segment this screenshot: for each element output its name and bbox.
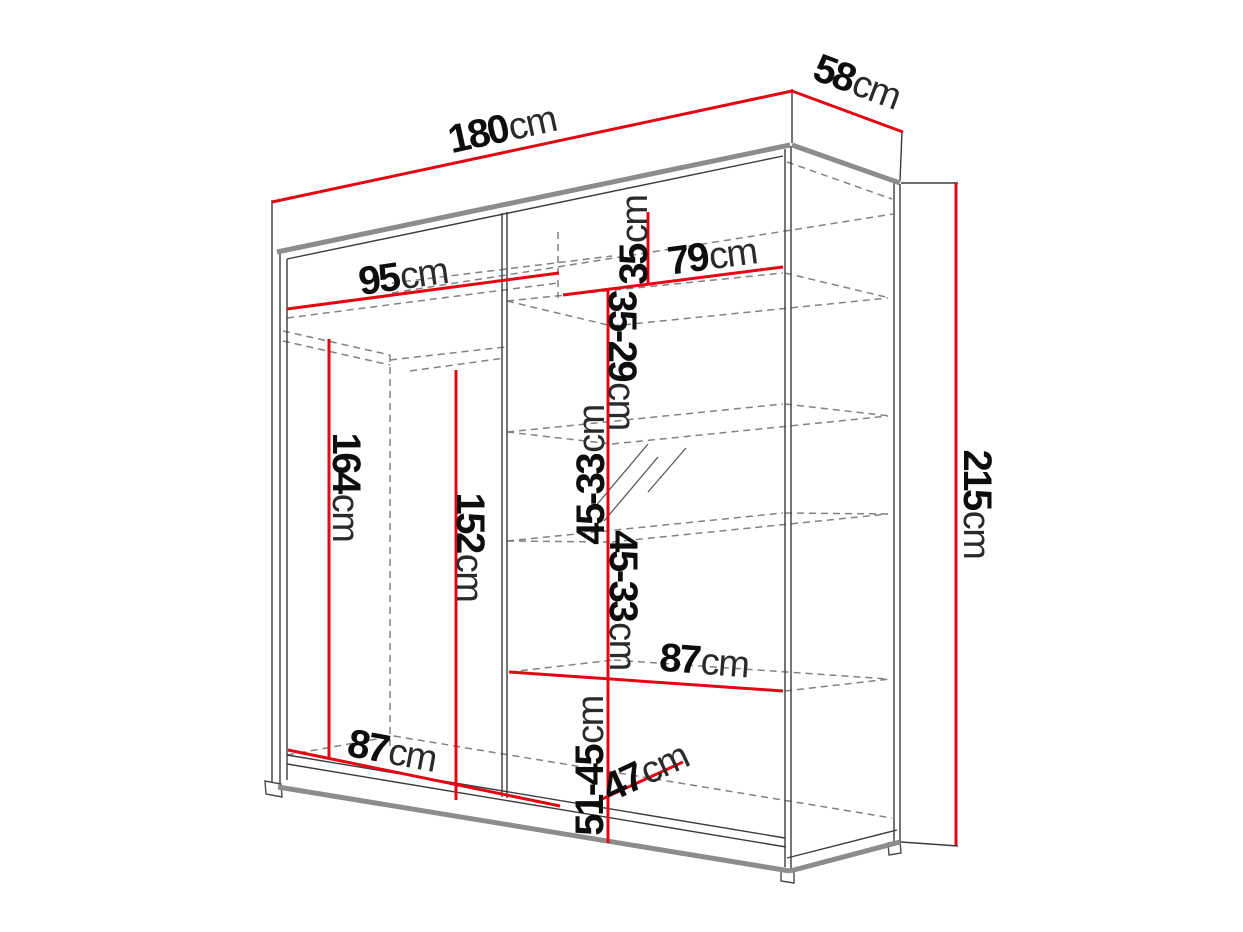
dim-label-height-152: 152cm xyxy=(450,493,490,602)
dim-label-top-shelf-35: 35cm xyxy=(614,195,654,284)
dim-label-height-164: 164cm xyxy=(326,433,366,542)
dim-label-gap-45-33-upper: 45-33cm xyxy=(571,405,611,544)
dim-label-height-215: 215cm xyxy=(957,450,997,559)
dim-label-shelf-87-right: 87cm xyxy=(658,638,750,685)
dim-label-gap-45-33-lower: 45-33cm xyxy=(603,530,643,669)
wardrobe-dimension-diagram: 180cm 58cm 215cm 95cm 35cm 79cm 35-29cm … xyxy=(0,0,1243,932)
